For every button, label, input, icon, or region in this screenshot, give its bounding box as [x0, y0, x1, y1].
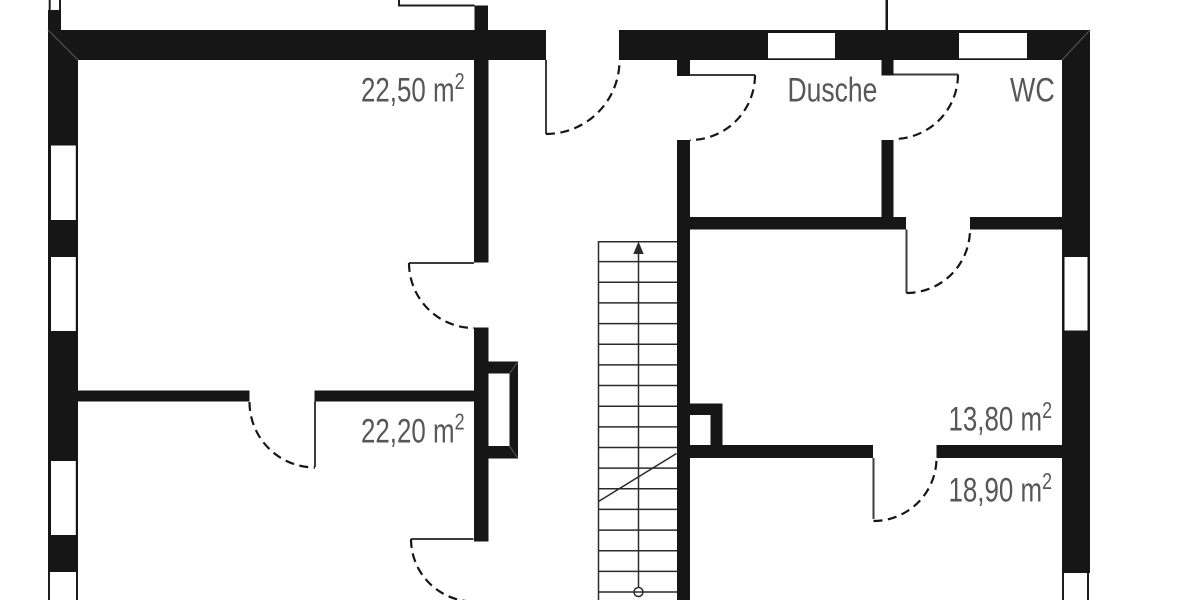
svg-text:22,50 m2: 22,50 m2 [361, 69, 465, 110]
svg-text:13,80 m2: 13,80 m2 [949, 398, 1053, 439]
svg-text:22,20 m2: 22,20 m2 [361, 409, 465, 450]
svg-text:WC: WC [1010, 72, 1055, 110]
svg-text:18,90 m2: 18,90 m2 [949, 469, 1053, 510]
svg-text:Dusche: Dusche [788, 71, 878, 109]
